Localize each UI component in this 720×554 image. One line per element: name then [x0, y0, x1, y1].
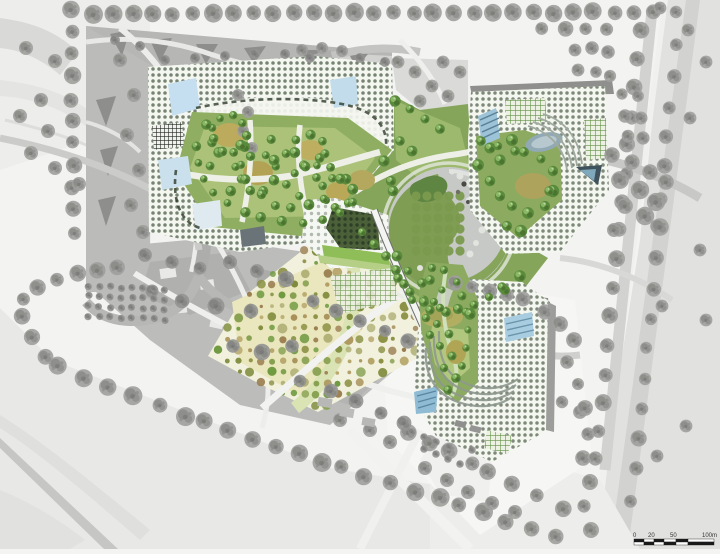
svg-text:50: 50 — [670, 533, 677, 539]
svg-text:100m: 100m — [702, 533, 717, 539]
svg-text:20: 20 — [648, 533, 655, 539]
